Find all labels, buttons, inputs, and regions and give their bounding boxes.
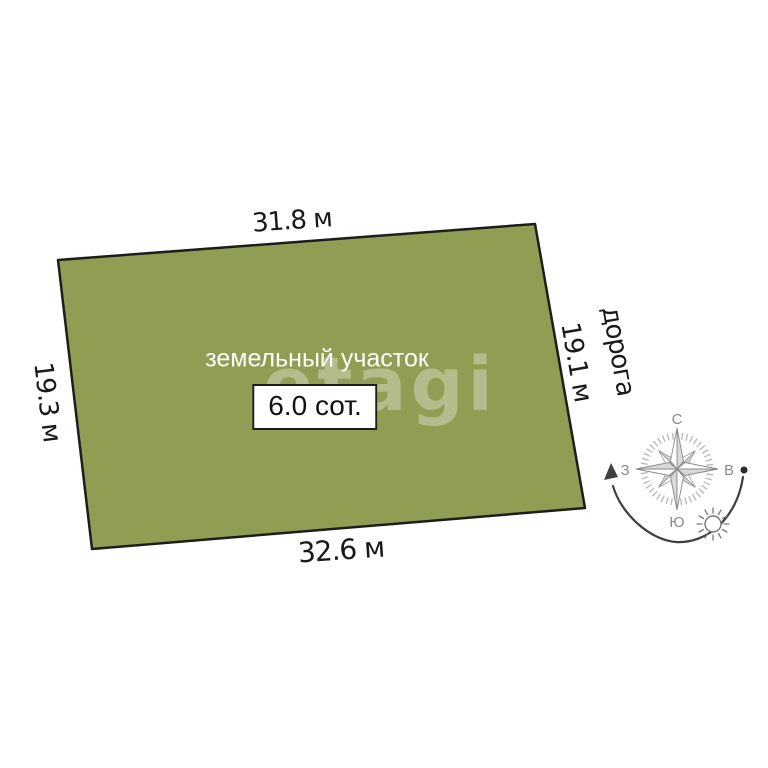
area-box: 6.0 сот.: [252, 384, 377, 430]
plot-title-label: земельный участок: [205, 345, 429, 374]
compass-rose-icon: С В Ю З: [620, 411, 734, 531]
compass-west-label: З: [620, 462, 629, 479]
sun-icon: [697, 508, 729, 540]
area-value-label: 6.0 сот.: [268, 390, 361, 421]
compass-east-label: В: [724, 462, 734, 479]
compass-cardinal-points-icon: [636, 428, 718, 510]
diagram-canvas: С В Ю З: [0, 0, 768, 768]
bottom-dimension-label: 32.6 м: [297, 531, 385, 570]
compass-south-label: Ю: [669, 514, 684, 531]
top-dimension-label: 31.8 м: [251, 203, 333, 238]
compass-north-label: С: [672, 411, 683, 428]
land-plot-diagram: С В Ю З: [0, 0, 768, 768]
